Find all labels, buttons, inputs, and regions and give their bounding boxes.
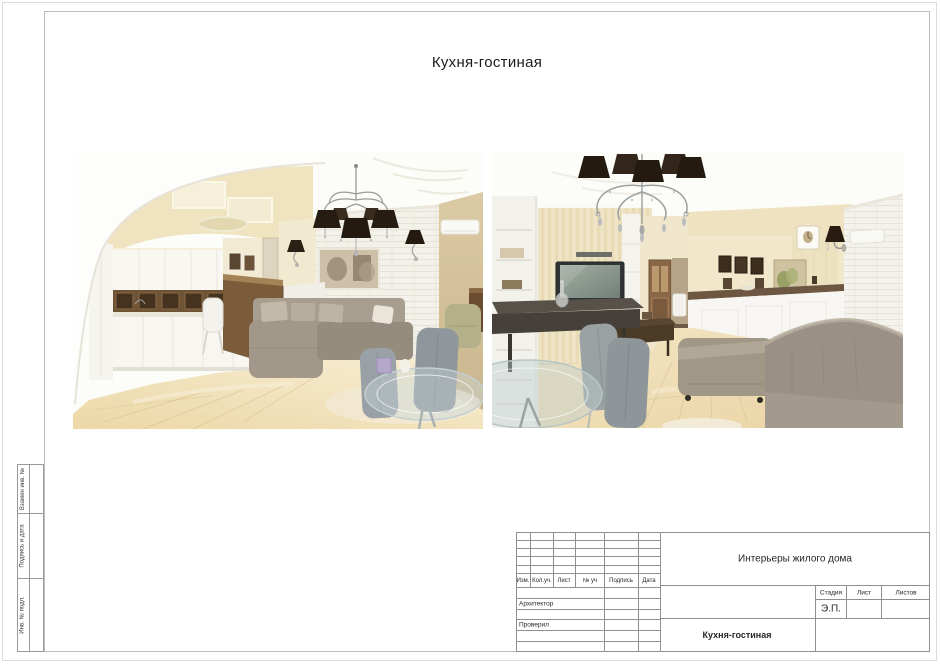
col-nuch: № уч [583,578,597,584]
role-checker: Проверил [519,622,549,629]
col-podpis: Подпись [609,578,633,584]
render-kitchen-living-view-1 [73,152,483,429]
col-list: Лист [557,578,570,584]
left-stamp: Взамен инв. № Подпись и дата Инв. № подл… [17,464,44,652]
render-2-scene [492,152,903,428]
sidebar-cell-vzamen: Взамен инв. № [17,464,29,513]
col-koluch: Кол.уч. [532,578,552,584]
col-data: Дата [642,578,655,584]
stage-header: Стадия [820,589,842,596]
role-architect: Архитектор [519,601,553,608]
sheet-name: Кухня-гостиная [703,630,772,640]
title-block: Изм. Кол.уч. Лист № уч Подпись Дата Архи… [516,532,930,652]
page-title: Кухня-гостиная [44,54,930,71]
air-conditioner [441,220,479,234]
wall-clock [797,226,819,249]
list-header: Лист [857,589,871,596]
drawing-sheet: Кухня-гостиная Взамен инв. № Подпись и д… [0,0,940,665]
sidebar-cell-podpis: Подпись и дата [17,513,29,578]
render-1-scene [73,152,483,429]
air-conditioner [850,229,885,244]
wall-picture [319,249,379,289]
listov-header: Листов [895,589,916,596]
col-izm: Изм. [517,578,530,584]
project-name: Интерьеры жилого дома [738,553,852,564]
stage-value: Э.П. [821,603,841,614]
render-kitchen-living-view-2 [492,152,903,428]
sidebar-cell-inv: Инв. № подл. [17,578,29,652]
